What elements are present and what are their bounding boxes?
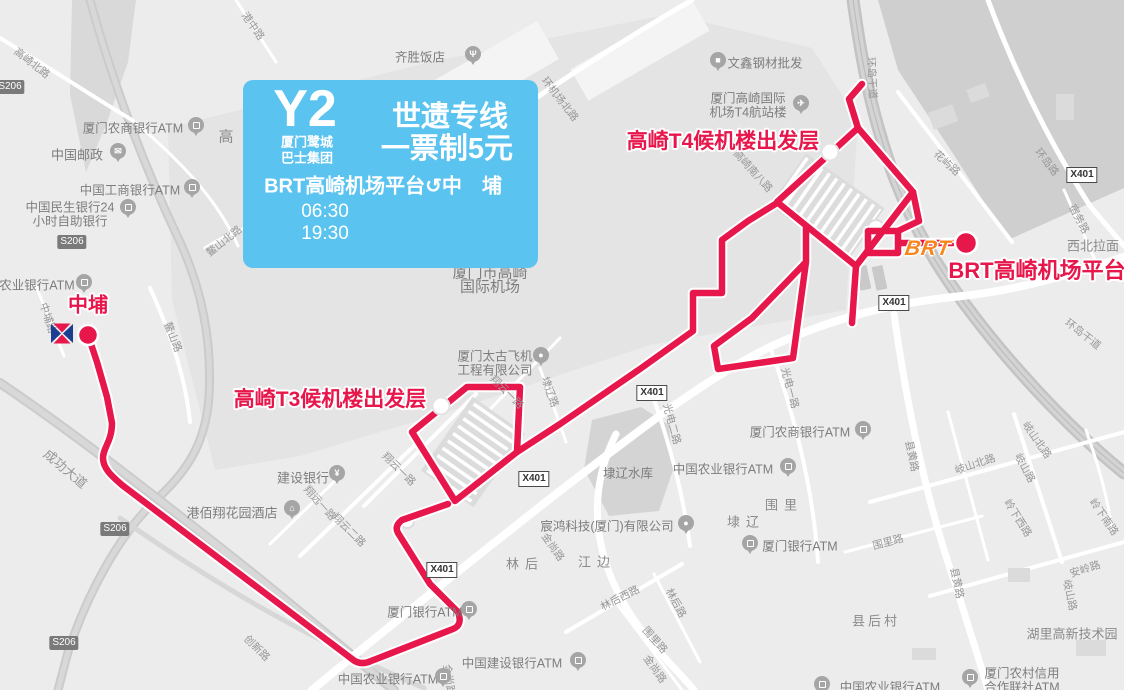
fare-info: 一票制5元 [381,125,513,167]
road-number-badge: X401 [1066,167,1097,183]
place-label: 湖里高新技术园 [1026,624,1117,643]
generic-glyph: ● [683,519,688,528]
poi-label: 中国邮政 [51,145,103,164]
poi-label: 合作联社ATM [984,677,1059,690]
plane-pin-icon: ✈ [793,95,809,111]
atm-pin-icon [780,458,796,474]
stop-marker-t4 [822,144,839,161]
generic-glyph: ● [538,351,543,360]
atm-pin-icon [120,199,136,215]
stop-label: 中埔 [68,289,108,318]
poi-label: 小时自助银行 [32,211,107,230]
stop-label: 高崎T4候机楼出发层 [627,125,820,155]
atm-pin-icon [435,668,451,684]
poi-label: 国际机场 [460,276,520,297]
poi-label: 港佰翔花园酒店 [186,503,277,522]
place-label: 江边 [578,552,616,571]
road-label: 环岛干道 [863,57,880,100]
poi-label: 厦门农商银行ATM [83,118,183,137]
poi-label: 工程有限公司 [457,360,532,379]
hotel-pin-icon: ⌂ [284,500,300,516]
poi-label: 建设银行 [277,468,329,487]
atm-glyph [819,681,826,688]
atm-pin-icon [855,421,871,437]
road-number-badge: X401 [878,295,909,311]
atm-glyph [860,426,867,433]
road-number-badge: S206 [0,80,25,94]
route-endpoints: BRT高崎机场平台↺中 埔 [264,170,502,199]
poi-label: 中国农业银行ATM [673,459,773,478]
plane-glyph: ✈ [797,99,805,108]
atm-glyph [747,540,754,547]
atm-pin-icon [184,179,200,195]
poi-label: 机场T4航站楼 [709,102,786,121]
place-label: 西北拉面 [1067,236,1119,255]
stop-marker-zhongpu [78,325,98,345]
poi-label: 中国建设银行ATM [462,653,562,672]
atm-glyph [189,184,196,191]
place-label: 县后村 [852,611,900,630]
route-map: BRT Y2 厦门鹭城 巴士集团 世遗专线 一票制5元 BRT高崎机场平台↺中 … [0,0,1124,690]
atm-glyph [81,279,88,286]
post-glyph: ✉ [114,147,122,156]
place-label: 埭辽 [727,512,765,531]
stop-label: BRT高崎机场平台 [948,253,1124,285]
atm-pin-icon [962,669,978,685]
bank-pin-icon: ¥ [329,465,345,481]
poi-label: 埭辽水库 [603,463,653,482]
atm-glyph [466,606,473,613]
poi-label: 厦门银行ATM [387,602,462,621]
place-label: 林后 [506,554,544,573]
shop-glyph: ■ [715,56,720,65]
post-pin-icon: ✉ [110,143,126,159]
road-number-badge: X401 [518,471,549,487]
atm-glyph [125,204,132,211]
poi-label: 中国农业银行ATM [338,669,438,688]
atm-glyph [967,674,974,681]
atm-glyph [785,463,792,470]
atm-glyph [440,673,447,680]
road-number-badge: X401 [426,562,457,578]
first-bus-time: 06:30 [301,201,349,223]
last-bus-time: 19:30 [301,223,349,245]
stop-marker-brt-platform [955,232,977,254]
poi-label: 农业银行ATM [0,275,75,294]
generic-pin-icon: ● [533,347,549,363]
restaurant-pin-icon: Ψ [465,46,481,62]
poi-label: 宸鸿科技(厦门)有限公司 [540,516,673,535]
atm-pin-icon [742,535,758,551]
road-number-badge: S206 [100,522,129,536]
atm-pin-icon [814,676,830,690]
poi-label: 厦门农商银行ATM [750,422,850,441]
place-label: 围里 [765,495,803,514]
place-label: 高 [218,126,233,147]
shop-pin-icon: ■ [710,52,726,68]
road-number-badge: S206 [57,235,86,249]
operator-name-line2: 巴士集团 [281,148,333,167]
restaurant-glyph: Ψ [469,50,476,59]
atm-glyph [193,122,200,129]
road-number-badge: S206 [49,636,78,650]
atm-glyph [575,657,582,664]
hotel-glyph: ⌂ [289,504,294,513]
generic-pin-icon: ● [678,515,694,531]
atm-pin-icon [570,652,586,668]
stop-marker-t3 [433,398,450,415]
route-info-card: Y2 厦门鹭城 巴士集团 世遗专线 一票制5元 BRT高崎机场平台↺中 埔 06… [243,80,538,268]
stop-label: 高崎T3候机楼出发层 [234,383,427,413]
road-number-badge: X401 [636,385,667,401]
poi-label: 中国农业银行ATM [840,677,940,690]
brt-logo: BRT [903,237,953,261]
metro-icon [50,323,74,344]
poi-label: 齐胜饭店 [395,47,445,66]
line-code: Y2 [273,79,337,139]
poi-label: 文鑫钢材批发 [727,53,802,72]
atm-pin-icon [461,601,477,617]
atm-pin-icon [188,117,204,133]
bank-glyph: ¥ [334,469,339,478]
poi-label: 厦门银行ATM [762,536,837,555]
